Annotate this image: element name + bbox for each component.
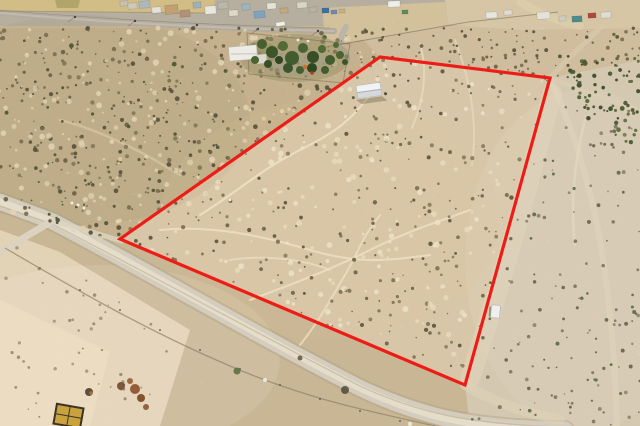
shrub bbox=[373, 225, 377, 229]
shrub bbox=[75, 84, 77, 86]
shrub bbox=[82, 295, 84, 297]
shrub bbox=[323, 91, 324, 92]
shrub bbox=[245, 121, 249, 125]
shrub bbox=[382, 28, 385, 31]
shrub bbox=[154, 65, 156, 67]
shrub bbox=[74, 66, 76, 68]
shrub bbox=[175, 96, 180, 101]
shrub bbox=[636, 76, 638, 78]
shrub bbox=[77, 162, 79, 164]
shrub bbox=[109, 131, 111, 133]
shrub bbox=[154, 59, 155, 60]
shrub bbox=[405, 138, 407, 140]
shrub bbox=[534, 98, 536, 100]
shrub bbox=[351, 311, 352, 312]
shrub bbox=[573, 76, 575, 78]
shrub bbox=[225, 223, 229, 227]
shrub bbox=[280, 144, 284, 148]
shrub bbox=[59, 146, 63, 150]
shrub bbox=[120, 38, 122, 40]
shrub bbox=[284, 28, 287, 31]
shrub bbox=[23, 93, 25, 95]
shrub bbox=[272, 279, 276, 283]
shrub bbox=[252, 199, 255, 202]
shrub bbox=[332, 158, 338, 164]
shrub bbox=[275, 140, 277, 142]
shrub bbox=[507, 69, 509, 71]
shrub bbox=[86, 210, 91, 215]
shrub bbox=[305, 255, 308, 258]
shrub bbox=[91, 119, 94, 122]
shrub bbox=[524, 60, 527, 63]
shrub bbox=[614, 121, 618, 125]
shrub bbox=[440, 273, 443, 276]
shrub bbox=[195, 216, 197, 218]
shrub bbox=[131, 61, 136, 66]
shrub bbox=[245, 153, 247, 155]
shrub bbox=[185, 250, 190, 255]
shrub bbox=[110, 403, 112, 405]
fence-post bbox=[119, 309, 121, 311]
shrub bbox=[342, 328, 343, 329]
shrub bbox=[82, 210, 84, 212]
shrub bbox=[30, 393, 31, 394]
shrub bbox=[140, 103, 142, 105]
shrub bbox=[207, 128, 212, 133]
shrub bbox=[177, 141, 179, 143]
shrub bbox=[593, 378, 595, 380]
shrub bbox=[450, 89, 452, 91]
shrub bbox=[610, 363, 613, 366]
shrub bbox=[599, 319, 601, 321]
shrub bbox=[157, 179, 161, 183]
shrub bbox=[273, 234, 277, 238]
shrub bbox=[622, 191, 625, 194]
shrub bbox=[408, 159, 409, 160]
shrub bbox=[18, 120, 20, 122]
shrub bbox=[204, 251, 205, 252]
shrub bbox=[85, 280, 87, 282]
shrub bbox=[533, 280, 536, 283]
shrub bbox=[391, 142, 394, 145]
shrub bbox=[596, 61, 599, 64]
shrub bbox=[148, 115, 151, 118]
fence-post bbox=[199, 349, 201, 351]
shrub bbox=[125, 154, 129, 158]
shrub bbox=[32, 86, 38, 92]
shrub bbox=[72, 121, 74, 123]
shrub bbox=[488, 231, 490, 233]
shrub bbox=[243, 105, 249, 111]
shrub bbox=[93, 338, 95, 340]
shrub bbox=[197, 44, 199, 46]
shrub bbox=[618, 324, 621, 327]
shrub bbox=[133, 102, 135, 104]
shrub bbox=[286, 241, 289, 244]
shrub bbox=[536, 49, 538, 51]
shrub bbox=[468, 64, 470, 66]
shrub bbox=[357, 189, 360, 192]
shrub bbox=[417, 190, 423, 196]
shrub bbox=[296, 220, 302, 226]
shrub bbox=[527, 92, 530, 95]
shrub bbox=[547, 367, 549, 369]
shrub bbox=[160, 70, 164, 74]
shrub bbox=[432, 324, 436, 328]
shrub bbox=[361, 255, 365, 259]
shrub bbox=[253, 310, 255, 312]
shrub bbox=[161, 189, 164, 192]
shrub bbox=[489, 281, 492, 284]
shrub bbox=[28, 134, 32, 138]
shrub bbox=[158, 42, 162, 46]
shrub bbox=[162, 87, 166, 91]
shrub bbox=[599, 105, 603, 109]
shrub bbox=[398, 34, 400, 36]
shrub bbox=[2, 97, 4, 99]
shrub bbox=[271, 28, 274, 31]
shrub bbox=[429, 66, 432, 69]
shrub bbox=[245, 329, 246, 330]
shrub bbox=[470, 92, 472, 94]
shrub bbox=[163, 117, 165, 119]
shrub bbox=[212, 144, 215, 147]
shrub bbox=[429, 271, 431, 273]
shrub bbox=[268, 120, 271, 123]
shrub bbox=[55, 218, 59, 222]
shrub bbox=[29, 140, 32, 143]
shrub bbox=[213, 47, 214, 48]
shrub bbox=[455, 208, 457, 210]
shrub bbox=[91, 144, 95, 148]
shrub bbox=[219, 212, 221, 214]
oasis-accent bbox=[303, 65, 308, 70]
shrub bbox=[463, 34, 467, 38]
shrub bbox=[449, 39, 453, 43]
shrub bbox=[286, 152, 290, 156]
shrub bbox=[397, 124, 403, 130]
shrub bbox=[222, 44, 226, 48]
shrub bbox=[627, 110, 630, 113]
shrub bbox=[48, 213, 51, 216]
shrub bbox=[192, 30, 196, 34]
shrub bbox=[327, 389, 328, 390]
shrub bbox=[166, 342, 168, 344]
shrub bbox=[97, 236, 103, 242]
shrub bbox=[377, 264, 381, 268]
shrub bbox=[153, 115, 156, 118]
shrub bbox=[103, 126, 107, 130]
shrub bbox=[546, 153, 548, 155]
shrub bbox=[402, 306, 408, 312]
oasis-accent bbox=[310, 71, 314, 75]
shrub bbox=[265, 258, 268, 261]
shrub bbox=[319, 263, 321, 265]
shrub bbox=[404, 290, 406, 292]
shrub bbox=[196, 95, 202, 101]
shrub bbox=[273, 113, 275, 115]
shrub bbox=[119, 170, 123, 174]
shrub bbox=[188, 140, 190, 142]
shrub bbox=[520, 309, 523, 312]
shrub bbox=[472, 58, 475, 61]
shrub bbox=[287, 108, 290, 111]
shrub bbox=[222, 120, 224, 122]
shrub bbox=[118, 173, 122, 177]
shrub bbox=[46, 68, 49, 71]
shrub bbox=[11, 84, 14, 87]
shrub bbox=[24, 167, 27, 170]
shrub bbox=[375, 237, 379, 241]
shrub bbox=[71, 152, 74, 155]
shrub bbox=[552, 169, 553, 170]
shrub bbox=[11, 315, 13, 317]
fence-post bbox=[399, 420, 401, 422]
shrub bbox=[449, 50, 452, 53]
shrub bbox=[422, 188, 425, 191]
shrub bbox=[576, 306, 579, 309]
shrub bbox=[246, 213, 250, 217]
shrub bbox=[114, 188, 119, 193]
shrub bbox=[637, 60, 640, 63]
shrub bbox=[176, 103, 178, 105]
shrub bbox=[433, 18, 434, 19]
shrub bbox=[522, 46, 524, 48]
shrub bbox=[172, 62, 177, 67]
shrub bbox=[41, 53, 42, 54]
oasis-tree bbox=[266, 46, 278, 58]
shrub bbox=[637, 55, 639, 57]
shrub bbox=[561, 329, 564, 332]
shrub bbox=[534, 414, 536, 416]
shrub bbox=[166, 112, 168, 114]
shrub bbox=[165, 121, 168, 124]
white-rock bbox=[71, 202, 74, 205]
shrub bbox=[389, 331, 391, 333]
shrub bbox=[498, 183, 499, 184]
shrub bbox=[352, 200, 356, 204]
rust-debris bbox=[143, 404, 149, 410]
shrub bbox=[37, 221, 38, 222]
shrub bbox=[138, 52, 142, 56]
shrub bbox=[230, 133, 233, 136]
shrub bbox=[110, 386, 112, 388]
shrub bbox=[249, 35, 255, 41]
shrub bbox=[90, 327, 93, 330]
shrub bbox=[59, 72, 62, 75]
shrub bbox=[297, 157, 299, 159]
shrub bbox=[127, 205, 131, 209]
shrub bbox=[603, 143, 606, 146]
shrub bbox=[96, 102, 102, 108]
shrub bbox=[23, 206, 27, 210]
shrub bbox=[268, 159, 274, 165]
shrub bbox=[98, 383, 100, 385]
shrub bbox=[234, 107, 238, 111]
shrub bbox=[592, 105, 595, 108]
shrub bbox=[518, 70, 520, 72]
shrub bbox=[567, 76, 569, 78]
shrub bbox=[38, 181, 40, 183]
shrub bbox=[527, 387, 531, 391]
shrub bbox=[169, 86, 171, 88]
shrub bbox=[167, 210, 170, 213]
shrub bbox=[543, 36, 546, 39]
shrub bbox=[68, 36, 69, 37]
shrub bbox=[483, 149, 485, 151]
shrub bbox=[187, 212, 189, 214]
shrub bbox=[198, 174, 200, 176]
shrub bbox=[188, 120, 190, 122]
shrub bbox=[544, 177, 546, 179]
shrub bbox=[182, 102, 183, 103]
shrub bbox=[469, 251, 473, 255]
shrub bbox=[615, 308, 618, 311]
vehicle-body bbox=[491, 305, 501, 319]
shrub bbox=[371, 159, 374, 162]
shrub bbox=[7, 58, 8, 59]
white-rock bbox=[83, 207, 86, 210]
shrub bbox=[62, 39, 65, 42]
shrub bbox=[64, 190, 66, 192]
shrub bbox=[15, 149, 18, 152]
building bbox=[180, 10, 190, 18]
shrub bbox=[496, 162, 499, 165]
shrub bbox=[124, 60, 126, 62]
shrub bbox=[464, 227, 470, 233]
shrub bbox=[439, 148, 442, 151]
shrub bbox=[402, 274, 403, 275]
shrub bbox=[360, 64, 362, 66]
shrub bbox=[118, 150, 122, 154]
shrub bbox=[411, 258, 413, 260]
shrub bbox=[241, 126, 245, 130]
shrub bbox=[288, 145, 290, 147]
shrub bbox=[146, 126, 149, 129]
shrub bbox=[34, 80, 37, 83]
shrub bbox=[510, 280, 514, 284]
shrub bbox=[259, 261, 262, 264]
shrub bbox=[472, 61, 474, 63]
shrub bbox=[387, 248, 391, 252]
building bbox=[331, 10, 337, 14]
shrub bbox=[163, 37, 168, 42]
shrub bbox=[480, 194, 483, 197]
shrub bbox=[428, 242, 432, 246]
shrub bbox=[384, 136, 390, 142]
shrub bbox=[614, 64, 617, 67]
shrub bbox=[368, 317, 372, 321]
shrub bbox=[459, 285, 461, 287]
shrub bbox=[178, 165, 181, 168]
shrub bbox=[205, 82, 208, 85]
shrub bbox=[415, 55, 417, 57]
shrub bbox=[339, 88, 344, 93]
shrub bbox=[478, 417, 481, 420]
shrub bbox=[543, 216, 547, 220]
shrub bbox=[195, 90, 198, 93]
shrub bbox=[310, 185, 315, 190]
shrub bbox=[395, 131, 398, 134]
shrub bbox=[612, 129, 616, 133]
shrub bbox=[224, 260, 228, 264]
shrub bbox=[360, 55, 363, 58]
shrub bbox=[418, 312, 419, 313]
shrub bbox=[453, 44, 455, 46]
shrub bbox=[390, 208, 392, 210]
shrub bbox=[377, 250, 382, 255]
shrub bbox=[370, 31, 373, 34]
shrub bbox=[5, 111, 9, 115]
shrub bbox=[211, 217, 212, 218]
shrub bbox=[371, 229, 373, 231]
shrub bbox=[62, 28, 64, 30]
shrub bbox=[43, 164, 48, 169]
shrub bbox=[61, 50, 65, 54]
shrub bbox=[297, 100, 299, 102]
shrub bbox=[561, 40, 563, 42]
utility-pole bbox=[74, 16, 76, 18]
shrub bbox=[601, 58, 604, 61]
shrub bbox=[27, 131, 29, 133]
shrub bbox=[366, 274, 368, 276]
shrub bbox=[135, 73, 136, 74]
shrub bbox=[594, 91, 597, 94]
shrub bbox=[116, 164, 118, 166]
shrub bbox=[337, 158, 343, 164]
shrub bbox=[583, 106, 586, 109]
building bbox=[402, 10, 408, 14]
shrub bbox=[515, 337, 517, 339]
shrub bbox=[225, 86, 228, 89]
shrub bbox=[508, 280, 510, 282]
shrub bbox=[247, 228, 251, 232]
shrub bbox=[628, 126, 631, 129]
shrub bbox=[481, 144, 485, 148]
shrub bbox=[161, 204, 163, 206]
shrub bbox=[581, 64, 583, 66]
shrub bbox=[372, 51, 375, 54]
white-rock bbox=[77, 204, 80, 207]
shrub bbox=[62, 204, 64, 206]
shrub bbox=[34, 166, 38, 170]
shrub bbox=[378, 39, 381, 42]
shrub bbox=[262, 227, 266, 231]
shrub bbox=[354, 270, 358, 274]
shrub bbox=[14, 119, 16, 121]
shrub bbox=[629, 365, 633, 369]
shrub bbox=[239, 65, 242, 68]
shrub bbox=[481, 111, 485, 115]
shrub bbox=[412, 105, 417, 110]
shrub bbox=[186, 201, 192, 207]
shrub bbox=[58, 189, 62, 193]
shrub bbox=[499, 90, 502, 93]
shrub bbox=[341, 286, 347, 292]
shrub bbox=[28, 207, 30, 209]
shrub bbox=[256, 29, 258, 31]
shrub bbox=[465, 87, 467, 89]
shrub bbox=[286, 113, 288, 115]
shrub bbox=[327, 242, 333, 248]
shrub bbox=[519, 331, 520, 332]
shrub bbox=[368, 73, 369, 74]
shrub bbox=[34, 51, 37, 54]
shrub bbox=[395, 219, 398, 222]
shrub bbox=[494, 235, 498, 239]
shrub bbox=[530, 237, 533, 240]
shrub bbox=[350, 174, 356, 180]
